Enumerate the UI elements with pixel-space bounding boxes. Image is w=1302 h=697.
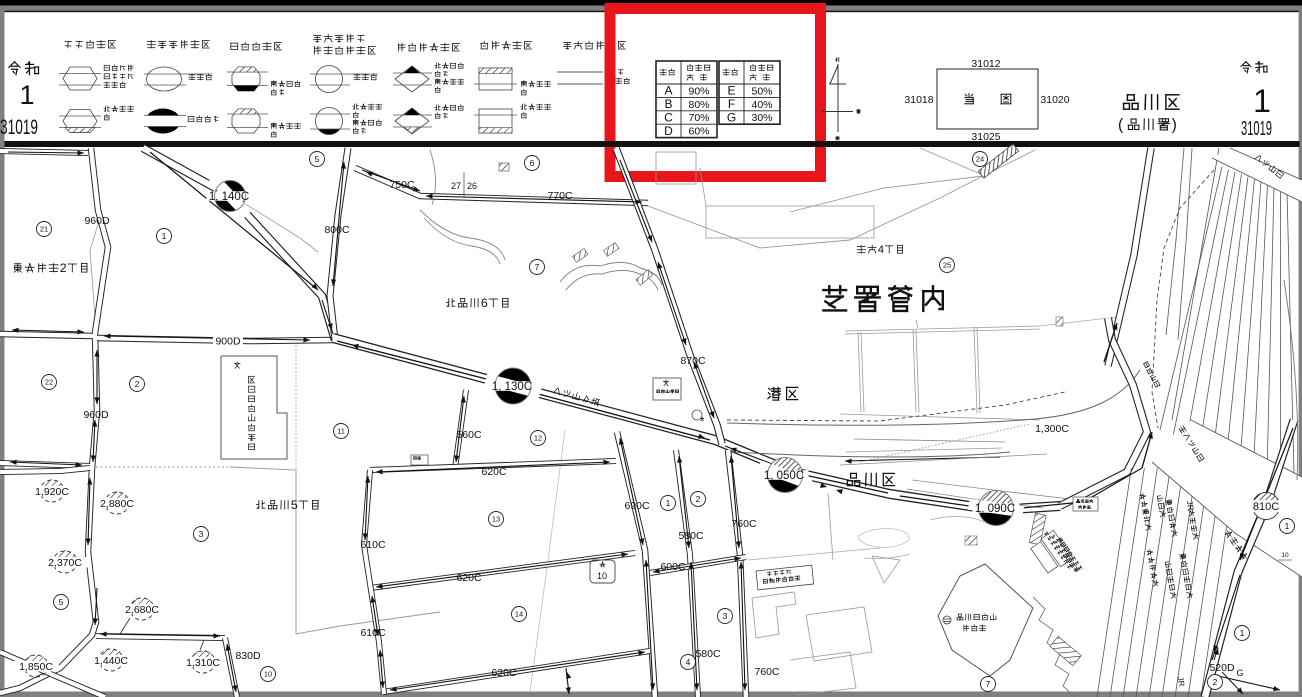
svg-text:C: C — [664, 110, 673, 124]
svg-text:520D: 520D — [1209, 662, 1235, 674]
svg-text:620C: 620C — [481, 466, 507, 478]
svg-text:1: 1 — [666, 498, 671, 508]
svg-text:JR: JR — [1176, 676, 1187, 687]
svg-text:900D: 900D — [215, 336, 241, 348]
svg-text:31020: 31020 — [1040, 94, 1069, 106]
svg-text:24: 24 — [976, 155, 984, 164]
svg-text:E: E — [727, 84, 735, 98]
svg-text:6: 6 — [481, 296, 488, 310]
svg-text:7: 7 — [535, 262, 540, 272]
svg-text:620C: 620C — [491, 667, 517, 679]
svg-text:80%: 80% — [688, 99, 709, 111]
svg-text:5: 5 — [59, 597, 64, 607]
svg-text:2,370C: 2,370C — [48, 557, 82, 569]
svg-text:31012: 31012 — [971, 58, 1000, 70]
svg-text:830D: 830D — [235, 650, 261, 662]
svg-text:10: 10 — [597, 571, 607, 581]
svg-text:D: D — [664, 124, 673, 138]
svg-text:10: 10 — [264, 670, 272, 679]
svg-text:580C: 580C — [678, 530, 704, 542]
svg-text:2: 2 — [696, 494, 701, 504]
svg-text:40%: 40% — [751, 99, 772, 111]
svg-text:90%: 90% — [688, 85, 709, 97]
svg-text:1,300C: 1,300C — [1035, 423, 1069, 435]
svg-text:870C: 870C — [680, 355, 706, 367]
svg-text:600C: 600C — [660, 561, 686, 573]
svg-text:560C: 560C — [456, 429, 482, 441]
svg-text:5: 5 — [315, 154, 320, 164]
svg-text:760C: 760C — [754, 666, 780, 678]
svg-text:1,310C: 1,310C — [186, 657, 220, 669]
svg-text:31019: 31019 — [1241, 118, 1272, 140]
svg-text:620C: 620C — [456, 572, 482, 584]
svg-text:2: 2 — [135, 379, 140, 389]
svg-text:26: 26 — [467, 181, 477, 191]
svg-text:610C: 610C — [360, 539, 386, 551]
svg-text:800C: 800C — [324, 224, 350, 236]
svg-text:960D: 960D — [83, 409, 109, 421]
svg-text:1, 090C: 1, 090C — [975, 503, 1015, 515]
svg-text:F: F — [728, 97, 735, 111]
svg-text:1,850C: 1,850C — [19, 661, 53, 673]
svg-text:1: 1 — [1285, 521, 1290, 531]
svg-text:1, 130C: 1, 130C — [492, 381, 532, 393]
svg-text:1,920C: 1,920C — [35, 486, 69, 498]
svg-text:3: 3 — [199, 529, 204, 539]
svg-text:2,880C: 2,880C — [100, 498, 134, 510]
svg-text:1, 140C: 1, 140C — [209, 191, 249, 203]
svg-text:60%: 60% — [688, 126, 709, 138]
svg-text:B: B — [664, 97, 672, 111]
svg-text:31018: 31018 — [904, 94, 933, 106]
svg-text:7: 7 — [986, 679, 991, 689]
svg-text:690C: 690C — [624, 500, 650, 512]
svg-text:11: 11 — [337, 427, 345, 436]
svg-text:31019: 31019 — [0, 116, 38, 139]
svg-text:G: G — [1236, 668, 1243, 678]
svg-text:2: 2 — [1213, 677, 1218, 687]
svg-text:14: 14 — [515, 610, 523, 619]
svg-text:770C: 770C — [547, 190, 573, 202]
svg-text:810C: 810C — [1253, 501, 1279, 513]
svg-text:760C: 760C — [731, 518, 757, 530]
svg-text:12: 12 — [534, 434, 542, 443]
svg-text:13: 13 — [492, 515, 500, 524]
svg-text:960D: 960D — [84, 215, 110, 227]
svg-text:1,440C: 1,440C — [94, 655, 128, 667]
svg-text:G: G — [727, 110, 736, 124]
svg-text:50%: 50% — [751, 85, 772, 97]
svg-text:6: 6 — [530, 158, 535, 168]
svg-text:610C: 610C — [360, 627, 386, 639]
svg-text:10: 10 — [1281, 552, 1289, 559]
svg-text:1: 1 — [1240, 628, 1245, 638]
svg-text:): ) — [1172, 117, 1177, 134]
svg-text:5: 5 — [291, 498, 298, 512]
svg-text:21: 21 — [40, 225, 48, 234]
svg-text:4: 4 — [686, 657, 691, 667]
svg-text:1: 1 — [19, 80, 34, 110]
svg-text:25: 25 — [943, 261, 951, 270]
svg-text:22: 22 — [45, 378, 53, 387]
svg-text:27: 27 — [451, 181, 461, 191]
svg-text:3: 3 — [723, 611, 728, 621]
svg-text:580C: 580C — [695, 648, 721, 660]
svg-text:1: 1 — [162, 231, 167, 241]
svg-text:JR: JR — [1185, 500, 1196, 511]
svg-text:1: 1 — [1253, 83, 1271, 119]
svg-text:70%: 70% — [688, 112, 709, 124]
svg-text:2: 2 — [60, 261, 67, 275]
svg-text:4: 4 — [878, 244, 884, 256]
svg-text:2,680C: 2,680C — [125, 604, 159, 616]
svg-text:30%: 30% — [751, 112, 772, 124]
svg-text:1, 050C: 1, 050C — [764, 470, 804, 482]
svg-text:A: A — [664, 84, 672, 98]
svg-text:750C: 750C — [389, 179, 415, 191]
svg-text:(: ( — [1118, 117, 1124, 134]
